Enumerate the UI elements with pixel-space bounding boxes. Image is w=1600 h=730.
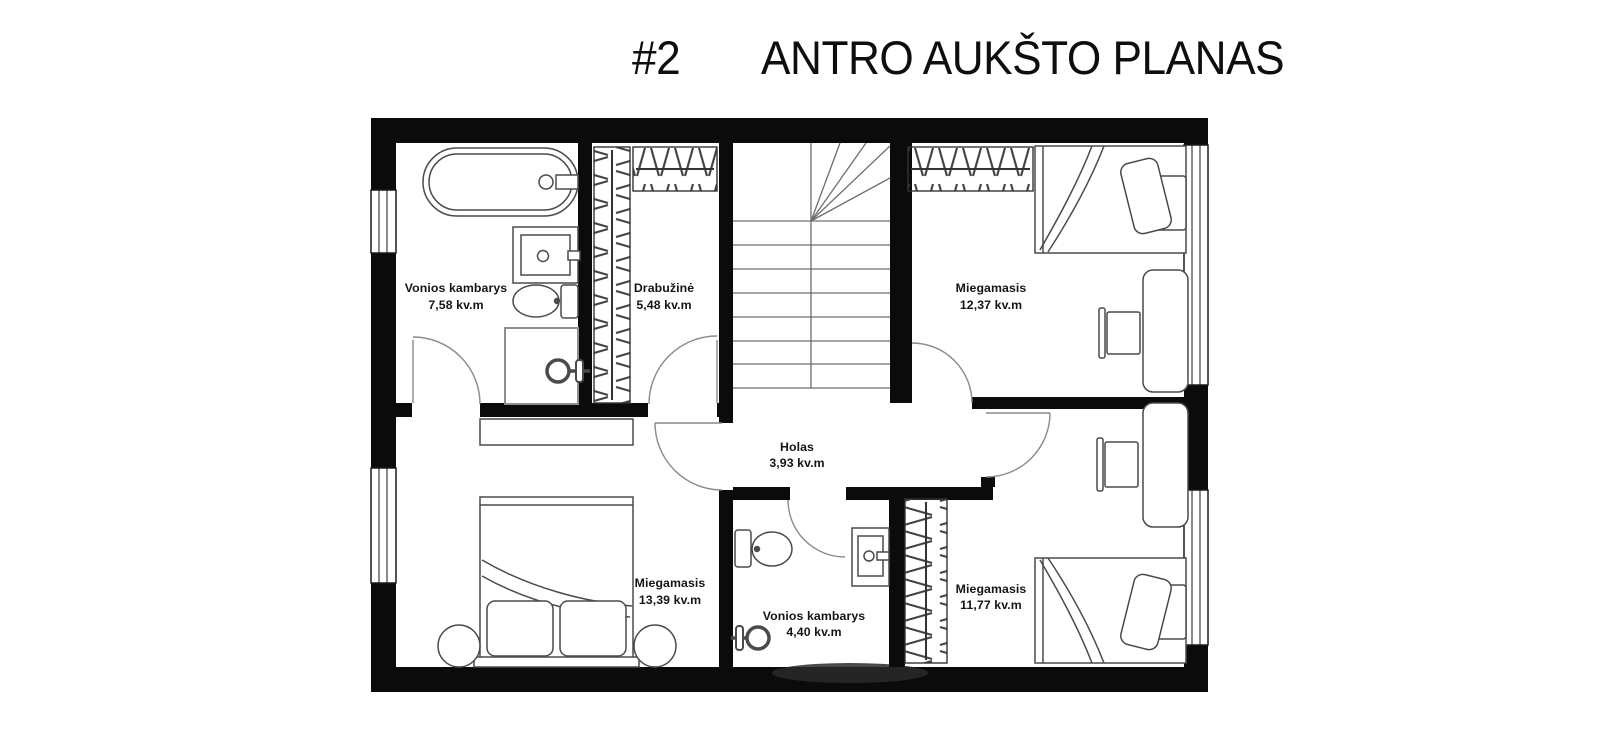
door-arc-icon — [655, 423, 722, 490]
nightstand-icon — [634, 625, 676, 667]
floor-plan-drawing: Vonios kambarys 7,58 kv.m Drabužinė 5,48… — [0, 0, 1600, 730]
stairs-icon — [733, 143, 890, 388]
dresser-icon — [480, 419, 633, 445]
toilet-icon — [735, 530, 792, 567]
room-label-name: Miegamasis — [956, 281, 1027, 295]
toilet-icon — [513, 285, 578, 318]
wardrobe-furniture — [594, 147, 717, 403]
bathroom-main-furniture — [423, 148, 590, 404]
sink-icon — [852, 528, 889, 586]
door-arc-icon — [788, 500, 845, 557]
room-label-name: Miegamasis — [635, 576, 706, 590]
room-label-area: 4,40 kv.m — [786, 625, 841, 639]
bedroom-bottom-right-furniture — [905, 403, 1188, 663]
desk-icon — [1143, 403, 1188, 527]
floor-plan-page: #2 ANTRO AUKŠTO PLANAS — [0, 0, 1600, 730]
chair-icon — [1097, 438, 1138, 491]
bed-icon — [1035, 146, 1186, 253]
bed-icon — [1035, 558, 1186, 663]
room-label-name: Vonios kambarys — [763, 609, 865, 623]
shower-head-icon — [547, 360, 590, 382]
room-label-area: 3,93 kv.m — [769, 456, 824, 470]
wardrobe-rack-icon — [908, 147, 1033, 191]
chair-icon — [1099, 308, 1140, 358]
bedroom-top-right-furniture — [908, 146, 1188, 392]
bathtub-icon — [423, 148, 578, 216]
nightstand-icon — [438, 625, 480, 667]
room-label-area: 7,58 kv.m — [428, 298, 483, 312]
sink-icon — [513, 227, 580, 283]
window-icon — [371, 190, 396, 253]
room-label-name: Holas — [780, 440, 814, 454]
shower-head-icon — [731, 626, 769, 650]
room-label-area: 11,77 kv.m — [960, 598, 1022, 612]
bed-icon — [474, 497, 639, 667]
wardrobe-rack-icon — [594, 147, 630, 403]
desk-icon — [1143, 270, 1188, 392]
door-arc-icon — [649, 336, 717, 404]
room-label-name: Drabužinė — [634, 281, 694, 295]
door-arc-icon — [912, 343, 972, 403]
pillow-icon — [487, 601, 553, 656]
window-icon — [371, 468, 396, 583]
room-label-name: Miegamasis — [956, 582, 1027, 596]
room-label-area: 12,37 kv.m — [960, 298, 1022, 312]
pillow-icon — [560, 601, 626, 656]
room-label-name: Vonios kambarys — [405, 281, 507, 295]
wardrobe-rack-icon — [905, 499, 947, 663]
wardrobe-rack-icon — [633, 147, 717, 191]
door-arc-icon — [413, 337, 480, 404]
door-arc-icon — [986, 413, 1050, 477]
room-label-area: 5,48 kv.m — [636, 298, 691, 312]
bedroom-bottom-left-furniture — [438, 419, 676, 667]
room-label-area: 13,39 kv.m — [639, 593, 701, 607]
